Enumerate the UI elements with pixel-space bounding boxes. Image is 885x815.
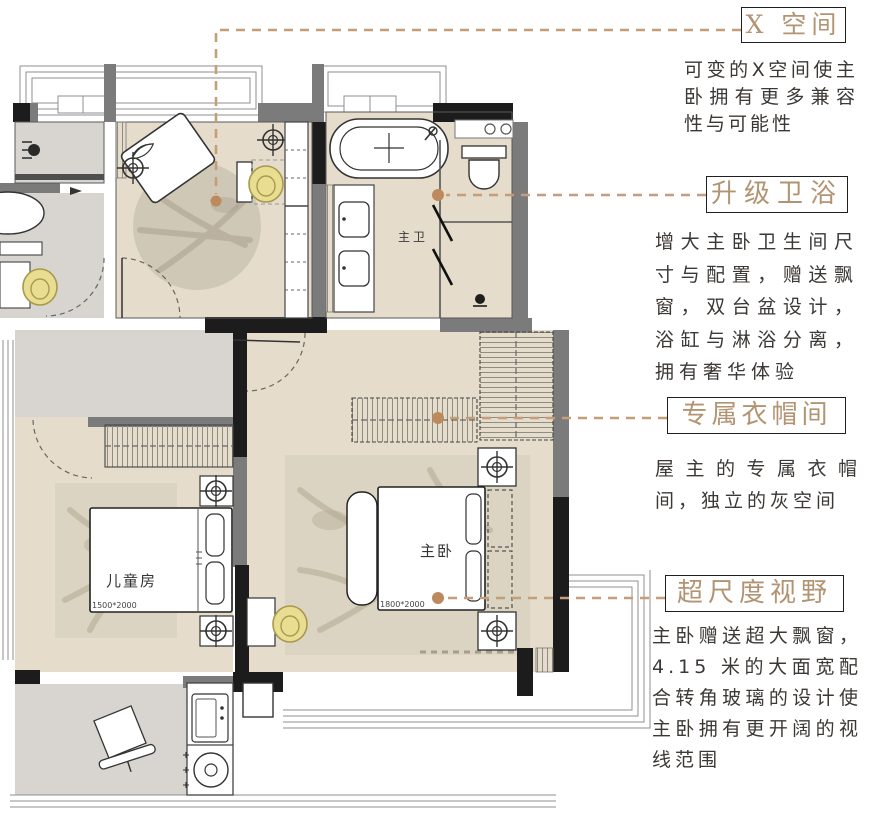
yellow-chair (249, 166, 283, 202)
kids-bed (90, 508, 232, 612)
room-label-kids: 儿童房 (106, 572, 157, 590)
double-vanity (326, 185, 374, 312)
room-label-master-bath: 主卫 (398, 230, 428, 244)
floor-areas (0, 112, 553, 795)
annotation-title-super-view: 超尺度视野 (665, 575, 844, 612)
annotation-title-x-space: X 空间 (741, 7, 846, 43)
yellow-stool-vanity (23, 269, 57, 305)
annotation-title-upgraded-bath: 升级卫浴 (706, 176, 848, 213)
bed-bench (347, 492, 377, 605)
annotation-desc-cloakroom: 屋主的专属衣帽间，独立的灰空间 (655, 453, 861, 517)
room-dim-master: 1800*2000 (380, 600, 425, 609)
annotation-title-cloakroom: 专属衣帽间 (667, 397, 846, 434)
laundry-column (183, 683, 233, 795)
bathtub (330, 119, 448, 178)
screenshot-root: 主卫 儿童房 1500*2000 (0, 0, 885, 815)
room-label-master: 主卧 (420, 542, 454, 560)
annotation-desc-x-space: 可变的X空间使主卧拥有更多兼容性与可能性 (684, 57, 858, 138)
balcony-door (243, 683, 273, 717)
annotation-desc-super-view: 主卧赠送超大飘窗，4.15 米的大面宽配合转角玻璃的设计使主卧拥有更开阔的视线范… (652, 621, 862, 776)
floor-drain-icon (475, 294, 485, 304)
annotation-desc-upgraded-bath: 增大主卧卫生间尺寸与配置，赠送飘窗，双台盆设计，浴缸与淋浴分离，拥有奢华体验 (655, 226, 858, 389)
yellow-stool-master (273, 606, 307, 642)
room-dim-kids: 1500*2000 (92, 601, 137, 610)
